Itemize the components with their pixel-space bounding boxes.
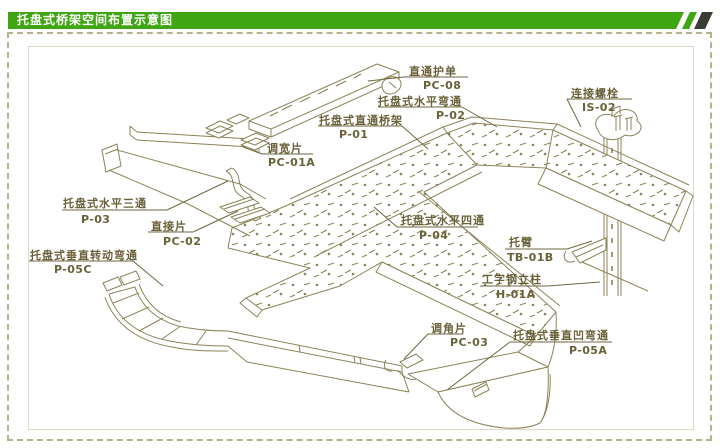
label-p05a-name: 托盘式垂直凹弯通 xyxy=(513,327,609,343)
label-p03-name: 托盘式水平三通 xyxy=(63,195,147,211)
label-tb01b-name: 托臂 xyxy=(509,234,533,250)
bottom-tray-drawing xyxy=(103,271,423,392)
label-p03-code: P-03 xyxy=(81,213,110,226)
diagram-page: 直通护单 PC-08 托盘式水平弯通 P-02 托盘式直通桥架 P-01 连接螺… xyxy=(0,0,720,448)
label-p01-name: 托盘式直通桥架 xyxy=(319,112,403,128)
label-pc02-code: PC-02 xyxy=(163,235,201,248)
label-p02-code: P-02 xyxy=(436,109,465,122)
label-p01-code: P-01 xyxy=(339,128,368,141)
label-p04-name: 托盘式水平四通 xyxy=(401,212,485,228)
label-pc08-code: PC-08 xyxy=(423,79,461,92)
label-pc01a-code: PC-01A xyxy=(268,156,315,169)
page-title: 托盘式桥架空间布置示意图 xyxy=(17,13,173,28)
label-p05c-name: 托盘式垂直转动弯通 xyxy=(30,247,138,263)
label-pc03-name: 调角片 xyxy=(431,320,467,336)
label-pc02-name: 直接片 xyxy=(151,218,187,234)
label-is02-name: 连接螺栓 xyxy=(571,85,619,101)
label-p05c-code: P-05C xyxy=(54,263,92,276)
label-p04-code: P-04 xyxy=(419,229,448,242)
label-h01a-name: 工字钢立柱 xyxy=(482,271,542,287)
label-p02-name: 托盘式水平弯通 xyxy=(378,93,462,109)
label-h01a-code: H-01A xyxy=(496,288,536,301)
label-p05a-code: P-05A xyxy=(569,344,607,357)
label-tb01b-code: TB-01B xyxy=(507,251,554,264)
label-pc03-code: PC-03 xyxy=(450,336,488,349)
label-pc01a-name: 调宽片 xyxy=(267,140,303,156)
label-is02-code: IS-02 xyxy=(582,101,616,114)
page-header-banner: 托盘式桥架空间布置示意图 xyxy=(8,12,684,29)
label-pc08-name: 直通护单 xyxy=(409,63,457,79)
